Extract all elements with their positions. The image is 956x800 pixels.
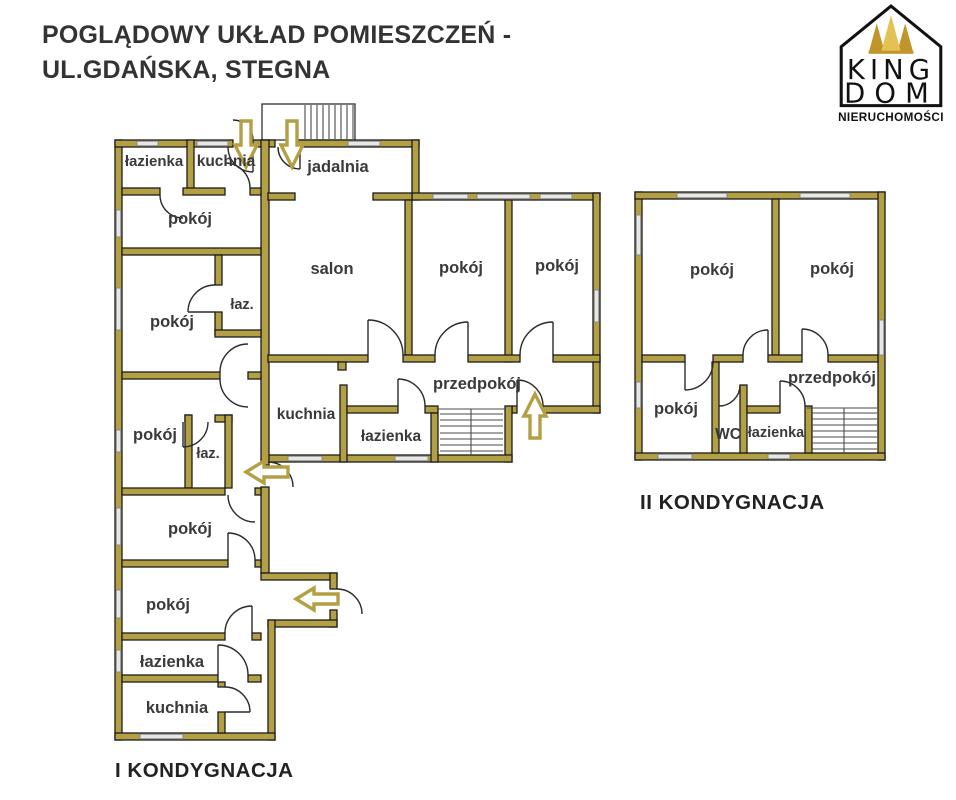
room-label-pokoj-left1: pokój: [150, 313, 194, 331]
floor1-porch-stairs: [262, 104, 355, 140]
room-label-lazienka-f2: łazienka: [748, 425, 805, 441]
room-label-salon: salon: [310, 260, 353, 278]
room-label-pokoj-f2-low: pokój: [654, 400, 698, 418]
floor1-walls: [115, 140, 600, 740]
entrance-arrow-vestibule: [296, 588, 338, 610]
floor2-door-arcs: [685, 329, 828, 406]
floor2-caption: II KONDYGNACJA: [640, 491, 825, 514]
room-label-przedpokoj-f1: przedpokój: [433, 375, 521, 393]
room-label-pokoj-f2-left: pokój: [690, 261, 734, 279]
room-label-pokoj-mid2: pokój: [535, 257, 579, 275]
room-label-pokoj-low2: pokój: [146, 596, 190, 614]
room-label-lazienka-mid: łazienka: [361, 428, 422, 445]
floor2-internal-stairs: [807, 408, 877, 453]
floor-plans-drawing: łazienka kuchnia jadalnia pokój salon po…: [0, 0, 956, 800]
floor-plan-page: POGLĄDOWY UKŁAD POMIESZCZEŃ - UL.GDAŃSKA…: [0, 0, 956, 800]
room-label-pokoj-left2: pokój: [133, 426, 177, 444]
room-label-kuchnia-low: kuchnia: [146, 699, 209, 717]
room-label-pokoj-f2-right: pokój: [810, 260, 854, 278]
floor2-walls: [635, 192, 885, 460]
room-label-pokoj-mid1: pokój: [439, 259, 483, 277]
floor1-internal-stairs: [438, 409, 505, 455]
room-label-laz1: łaz.: [230, 297, 253, 313]
room-label-lazienka-top: łazienka: [125, 153, 184, 170]
room-label-laz2: łaz.: [196, 446, 219, 462]
room-label-pokoj-low1: pokój: [168, 520, 212, 538]
room-label-pokoj-top: pokój: [168, 210, 212, 228]
room-label-przedpokoj-f2: przedpokój: [788, 369, 876, 387]
room-label-wc: WC: [715, 426, 741, 443]
room-label-lazienka-low: łazienka: [140, 653, 205, 671]
room-label-kuchnia-top: kuchnia: [197, 153, 256, 170]
room-label-kuchnia-mid: kuchnia: [277, 406, 336, 423]
room-label-jadalnia: jadalnia: [306, 158, 369, 176]
floor1-caption: I KONDYGNACJA: [115, 759, 294, 782]
floor2-room-labels: pokój pokój przedpokój pokój WC łazienka: [654, 260, 876, 443]
